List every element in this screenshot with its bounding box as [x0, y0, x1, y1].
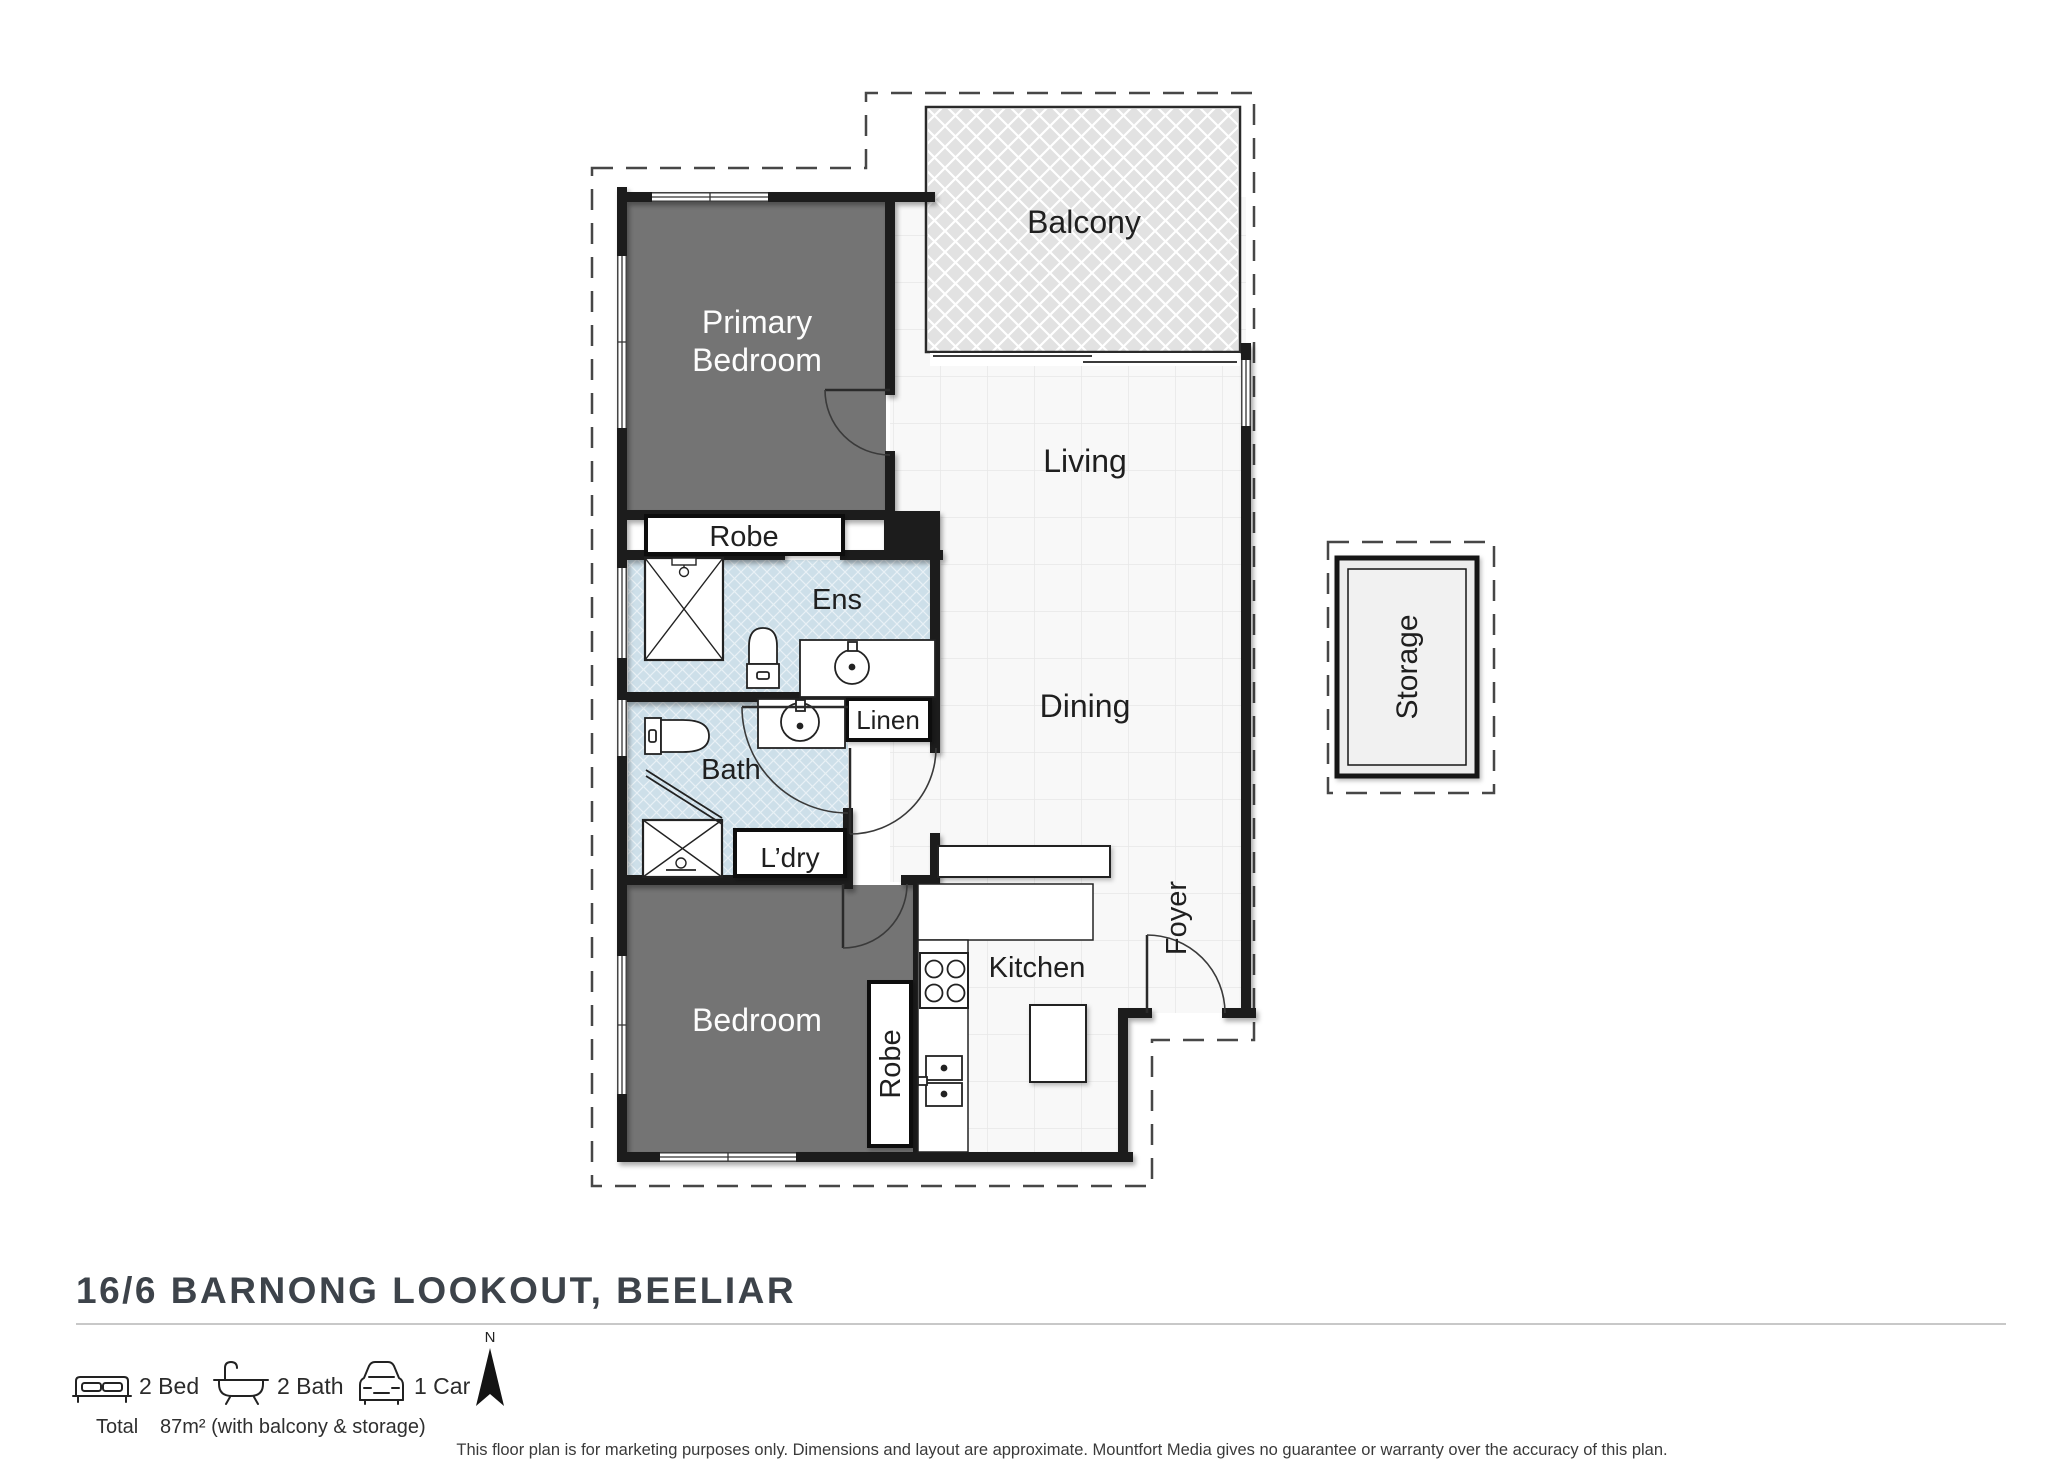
disclaimer-text: This floor plan is for marketing purpose…	[456, 1441, 1667, 1459]
car-icon	[360, 1362, 403, 1404]
kitchen-counter-north	[918, 884, 1093, 940]
window-bedroom-south	[660, 1152, 796, 1162]
floor-plan-canvas: Balcony Primary Bedroom Living Robe Ens …	[0, 0, 2048, 1460]
kitchen-bench	[938, 846, 1110, 877]
feature-row: 2 Bed 2 Bath 1 Car N	[73, 1329, 504, 1406]
page-title: 16/6 BARNONG LOOKOUT, BEELIAR	[76, 1270, 796, 1311]
window-bath-west	[617, 700, 627, 756]
living-label: Living	[1043, 443, 1127, 479]
window-ens-west	[617, 568, 627, 658]
linen-label: Linen	[856, 705, 920, 735]
bath-icon	[214, 1362, 268, 1404]
stove-icon	[920, 953, 968, 1008]
bath-shower-icon	[643, 820, 722, 877]
ens-shower-icon	[645, 558, 723, 660]
total-label: Total	[96, 1416, 138, 1438]
robe-bedroom-label: Robe	[875, 1029, 907, 1098]
kitchen-island	[1030, 1005, 1086, 1082]
floor-plan-page: Balcony Primary Bedroom Living Robe Ens …	[0, 0, 2048, 1460]
ens-toilet-icon	[747, 628, 779, 688]
kitchen-label: Kitchen	[989, 952, 1086, 984]
window-living-east	[1241, 360, 1251, 426]
bed-icon	[73, 1377, 131, 1402]
balcony-label: Balcony	[1027, 204, 1141, 240]
bath-label: Bath	[701, 754, 761, 786]
window-primary-north	[652, 192, 768, 202]
laundry-label: L’dry	[760, 842, 819, 873]
bath-count-label: 2 Bath	[277, 1373, 344, 1399]
north-label: N	[485, 1329, 496, 1346]
foyer-label: Foyer	[1161, 881, 1193, 955]
dining-label: Dining	[1040, 688, 1131, 724]
bath-toilet-icon	[645, 718, 709, 754]
ens-label: Ens	[812, 584, 862, 616]
storage-label: Storage	[1391, 614, 1424, 719]
bed-count-label: 2 Bed	[139, 1373, 199, 1399]
window-bedroom-west	[617, 956, 627, 1094]
window-primary-west	[617, 256, 627, 428]
total-value: 87m² (with balcony & storage)	[160, 1416, 426, 1438]
north-arrow-icon: N	[476, 1329, 504, 1406]
ens-vanity-icon	[800, 640, 935, 697]
robe-primary-label: Robe	[709, 521, 778, 553]
bedroom-label: Bedroom	[692, 1002, 822, 1038]
primary-bedroom-label-line1: Primary	[702, 304, 812, 340]
car-count-label: 1 Car	[414, 1373, 471, 1399]
primary-bedroom-label-line2: Bedroom	[692, 342, 822, 378]
